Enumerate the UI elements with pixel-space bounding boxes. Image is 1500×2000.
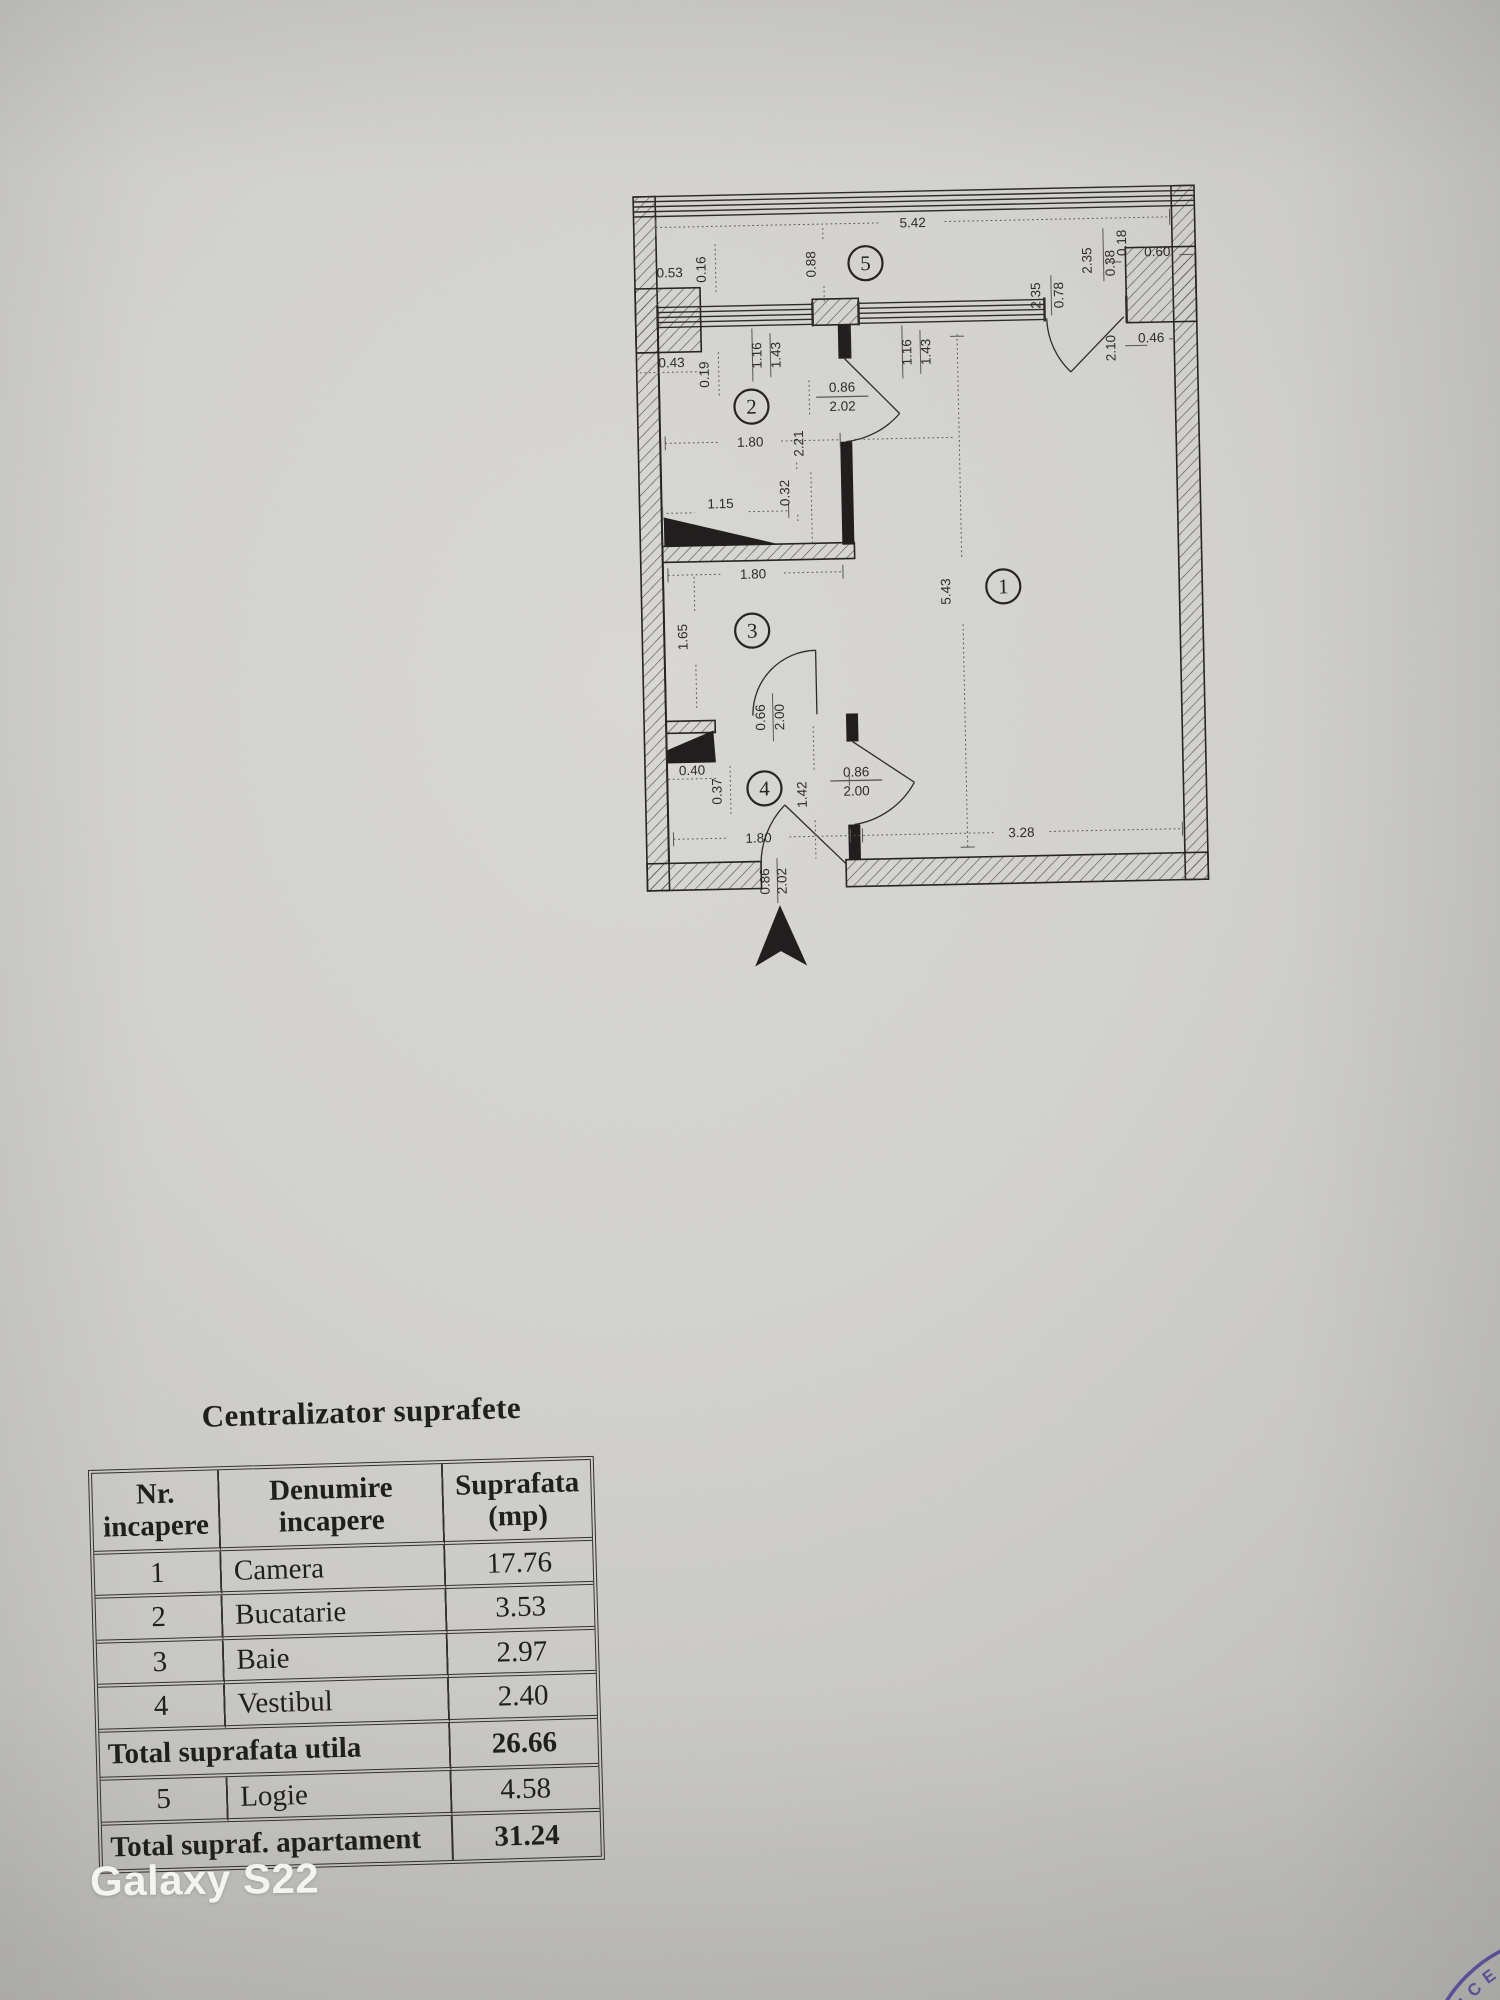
partition-kitchen-room [840, 441, 854, 544]
row1-area: 17.76 [446, 1541, 594, 1590]
ink-stamp-fragment: ANCE [1388, 1884, 1500, 2000]
row3-nr: 3 [97, 1640, 225, 1688]
room2-number: 2 [746, 394, 757, 418]
dim-entry-door-height: 2.02 [774, 868, 790, 895]
wall-bottom-left [647, 861, 762, 890]
dim-window2-num: 1.16 [899, 339, 915, 366]
dim-046: 0.46 [1138, 330, 1165, 346]
dim-window1-num: 1.16 [749, 342, 765, 369]
dim-room-height: 5.43 [938, 578, 954, 605]
header-suprafata: Suprafata (mp) [443, 1460, 592, 1545]
row4-name: Vestibul [225, 1678, 450, 1729]
row4-nr: 4 [98, 1685, 226, 1733]
dim-kitchen-door-height: 2.02 [829, 398, 856, 414]
row3-name: Baie [224, 1634, 449, 1685]
row2-area: 3.53 [447, 1585, 595, 1634]
dim-037: 0.37 [709, 778, 725, 805]
header-denumire: Denumire incapere [219, 1464, 445, 1551]
dim-entry-door-width: 0.86 [757, 868, 773, 895]
room4-number: 4 [759, 776, 771, 800]
dim-window2-den: 1.43 [918, 339, 934, 366]
row4-area: 2.40 [449, 1674, 597, 1723]
dim-235: 2.35 [1079, 247, 1095, 274]
dim-bath-width: 1.80 [740, 566, 767, 582]
partition-kitchen-stub [838, 325, 851, 359]
logie-outer-window [633, 185, 1194, 217]
room5-number: 5 [860, 251, 871, 275]
room-window [858, 299, 1044, 323]
shaft-vestibul [666, 730, 716, 763]
row1-nr: 1 [94, 1551, 222, 1599]
door-entrance [760, 804, 846, 866]
dim-room-door-width: 0.86 [843, 764, 870, 780]
camera-watermark: Galaxy S22 [90, 1854, 320, 1905]
floor-plan-drawing: 5.42 0.53 0.60 0.46 0.43 0.86 2.02 1.80 … [622, 160, 1229, 986]
room3-number: 3 [747, 619, 758, 643]
row1-name: Camera [221, 1545, 446, 1596]
dim-bath-depth: 1.65 [675, 624, 691, 651]
row3-area: 2.97 [448, 1630, 596, 1679]
floor-plan-svg: 5.42 0.53 0.60 0.46 0.43 0.86 2.02 1.80 … [622, 160, 1229, 986]
row5-name: Logie [228, 1771, 453, 1822]
dim-bath-door-height: 2.00 [772, 704, 788, 731]
dim-032: 0.32 [777, 480, 793, 507]
dim-016: 0.16 [693, 256, 709, 283]
dim-logie-depth: 0.88 [803, 251, 819, 278]
dim-kitchen-depth: 2.21 [791, 430, 807, 457]
surfaces-table: Nr. incapere Denumire incapere Suprafata… [88, 1456, 605, 1874]
dim-logie-length: 5.42 [899, 215, 926, 231]
dim-logie-door-width: 0.78 [1051, 282, 1067, 309]
dim-060: 0.60 [1144, 244, 1171, 260]
dim-room-door-height: 2.00 [843, 783, 870, 799]
dim-053: 0.53 [656, 265, 683, 281]
area-summary-block: Centralizator suprafete Nr. incapere Den… [86, 1387, 623, 1874]
dim-018: 0.18 [1114, 230, 1130, 257]
dim-019: 0.19 [697, 361, 713, 388]
wall-left-block [635, 288, 701, 353]
table-title: Centralizator suprafete [86, 1387, 611, 1438]
shaft-kitchen [664, 515, 779, 546]
partition-vestibul-stub [846, 713, 859, 741]
table-header-row: Nr. incapere Denumire incapere Suprafata… [92, 1460, 592, 1555]
north-arrow [754, 905, 807, 967]
dim-logie-door-height: 2.35 [1028, 282, 1044, 309]
dim-040: 0.40 [679, 763, 706, 779]
total-apartament-value: 31.24 [453, 1812, 601, 1861]
dim-kitchen-door-width: 0.86 [829, 379, 856, 395]
row5-nr: 5 [101, 1777, 229, 1825]
dim-window1-den: 1.43 [768, 342, 784, 369]
dim-kitchen-width: 1.80 [737, 434, 764, 450]
shaft-vestibul-top [666, 720, 715, 733]
dim-115: 1.15 [707, 496, 734, 512]
row2-name: Bucatarie [223, 1589, 448, 1640]
row2-nr: 2 [96, 1596, 224, 1644]
dim-043: 0.43 [658, 355, 685, 371]
dim-bath-door-width: 0.66 [753, 704, 769, 731]
row5-area: 4.58 [452, 1767, 600, 1816]
header-nr: Nr. incapere [92, 1470, 221, 1554]
total-utila-value: 26.66 [451, 1719, 599, 1772]
logie-pier [812, 298, 859, 325]
dim-vestibul-width: 1.80 [745, 830, 772, 846]
room1-number: 1 [998, 574, 1009, 598]
wall-bottom-right [846, 852, 1208, 887]
dim-vestibul-depth: 1.42 [794, 781, 810, 808]
dim-room-width: 3.28 [1008, 825, 1035, 841]
dim-210: 2.10 [1103, 335, 1119, 362]
